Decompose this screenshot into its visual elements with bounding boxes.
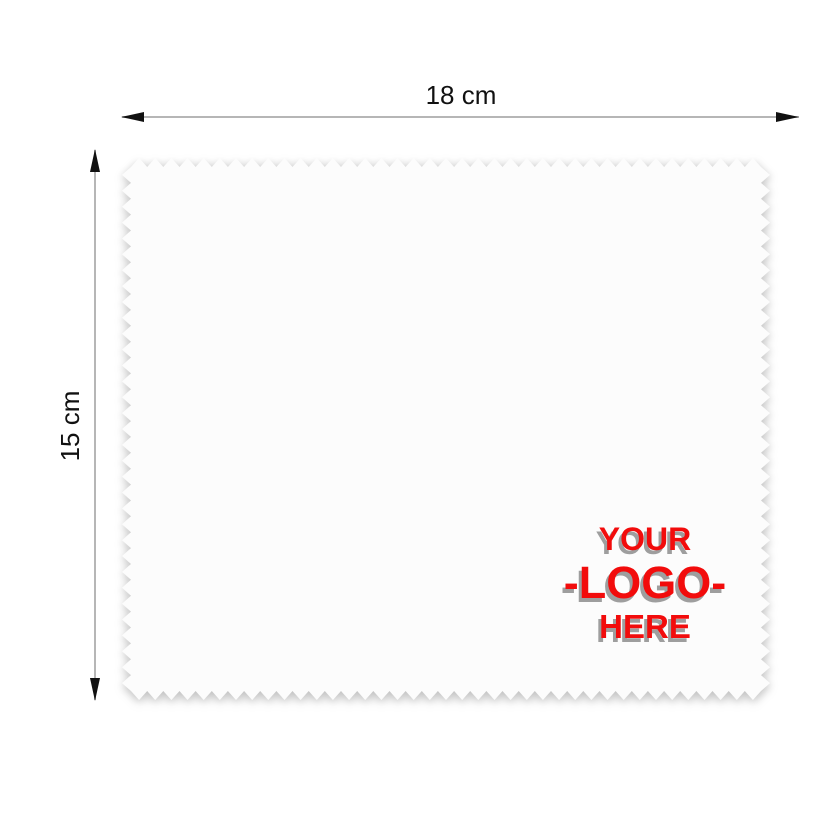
logo-text-logo: -LOGO- (560, 561, 730, 605)
width-dimension-label: 18 cm (361, 80, 561, 111)
arrowhead-down-icon (90, 678, 100, 701)
width-dimension-line (122, 116, 799, 118)
logo-placeholder: YOUR -LOGO- HERE (560, 524, 730, 643)
arrowhead-right-icon (776, 112, 799, 122)
height-dimension-line (94, 150, 96, 700)
logo-text-your: YOUR (560, 524, 730, 554)
logo-text-here: HERE (560, 611, 730, 643)
product-mockup: 18 cm 15 cm YOUR -LOGO- HERE (0, 0, 827, 827)
height-dimension-label: 15 cm (55, 326, 83, 526)
arrowhead-left-icon (121, 112, 144, 122)
arrowhead-up-icon (90, 149, 100, 172)
